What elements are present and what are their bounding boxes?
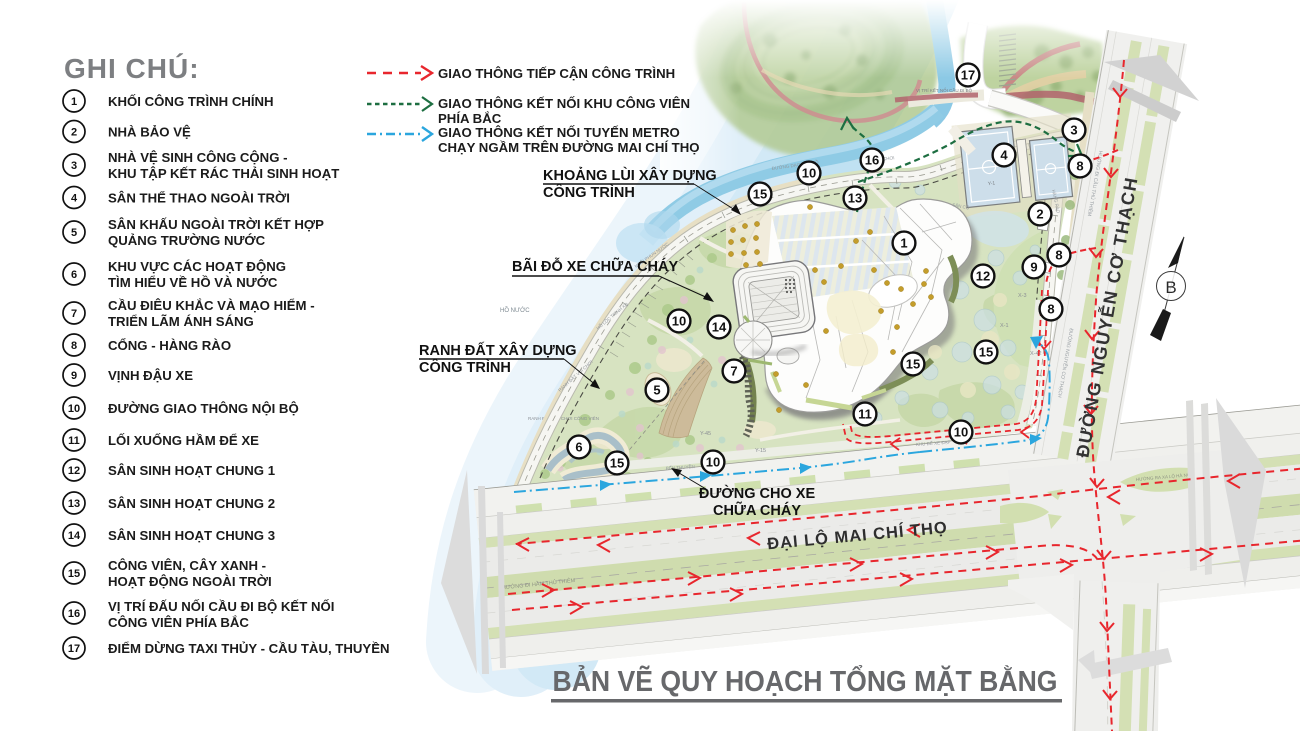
svg-text:8: 8 xyxy=(1055,248,1062,263)
svg-text:14: 14 xyxy=(712,320,727,335)
svg-text:5: 5 xyxy=(71,227,77,239)
svg-text:GIAO THÔNG KẾT NỐI TUYẾN METRO: GIAO THÔNG KẾT NỐI TUYẾN METRO xyxy=(438,125,680,140)
svg-text:RANH ĐẤT VUI CHƠI CÔNG VIÊN: RANH ĐẤT VUI CHƠI CÔNG VIÊN xyxy=(528,414,599,421)
svg-text:LỐI XUỐNG HẦM ĐỂ XE: LỐI XUỐNG HẦM ĐỂ XE xyxy=(108,433,259,448)
svg-text:CHỮA CHÁY: CHỮA CHÁY xyxy=(713,501,801,519)
svg-text:11: 11 xyxy=(68,435,80,447)
svg-text:NHÀ VỆ SINH CÔNG CỘNG -: NHÀ VỆ SINH CÔNG CỘNG - xyxy=(108,150,288,165)
svg-text:2: 2 xyxy=(1036,207,1043,222)
svg-text:6: 6 xyxy=(575,440,582,455)
svg-text:GHI CHÚ:: GHI CHÚ: xyxy=(64,53,200,84)
svg-text:ĐƯỜNG CHO XE: ĐƯỜNG CHO XE xyxy=(699,484,816,502)
svg-text:GIAO THÔNG KẾT NỐI KHU CÔNG VI: GIAO THÔNG KẾT NỐI KHU CÔNG VIÊN xyxy=(438,96,690,111)
svg-text:VỊ TRÍ KẾT NỐI CẦU ĐI BỘ: VỊ TRÍ KẾT NỐI CẦU ĐI BỘ xyxy=(916,87,973,93)
svg-text:13: 13 xyxy=(68,498,80,510)
svg-text:4: 4 xyxy=(71,193,78,205)
svg-text:CÔNG TRÌNH: CÔNG TRÌNH xyxy=(543,183,635,201)
svg-text:B: B xyxy=(1165,278,1176,297)
svg-text:PHÍA BẮC: PHÍA BẮC xyxy=(438,111,502,126)
svg-text:15: 15 xyxy=(610,456,624,471)
svg-text:CÔNG VIÊN PHÍA BẮC: CÔNG VIÊN PHÍA BẮC xyxy=(108,615,249,630)
svg-text:CẦU ĐIÊU KHẮC VÀ MẠO HIỂM -: CẦU ĐIÊU KHẮC VÀ MẠO HIỂM - xyxy=(108,298,315,313)
svg-text:10: 10 xyxy=(954,425,968,440)
svg-text:KHOẢNG LÙI XÂY DỰNG: KHOẢNG LÙI XÂY DỰNG xyxy=(543,166,717,184)
svg-text:15: 15 xyxy=(753,187,767,202)
svg-text:HOẠT ĐỘNG NGOÀI TRỜI: HOẠT ĐỘNG NGOÀI TRỜI xyxy=(108,574,272,589)
svg-text:KHU TẬP KẾT RÁC THẢI SINH HOẠT: KHU TẬP KẾT RÁC THẢI SINH HOẠT xyxy=(108,166,339,181)
svg-text:X-3: X-3 xyxy=(1018,293,1027,299)
svg-text:3: 3 xyxy=(71,160,77,172)
svg-text:9: 9 xyxy=(1030,260,1037,275)
svg-text:8: 8 xyxy=(1076,159,1083,174)
svg-text:Y-15: Y-15 xyxy=(755,448,766,454)
svg-text:CHẠY NGẦM TRÊN ĐƯỜNG MAI CHÍ T: CHẠY NGẦM TRÊN ĐƯỜNG MAI CHÍ THỌ xyxy=(438,140,700,155)
svg-text:HỒ NƯỚC: HỒ NƯỚC xyxy=(500,307,530,314)
svg-text:17: 17 xyxy=(961,68,975,83)
svg-text:10: 10 xyxy=(672,314,686,329)
svg-text:SÂN SINH HOẠT CHUNG 1: SÂN SINH HOẠT CHUNG 1 xyxy=(108,463,275,478)
svg-text:2: 2 xyxy=(71,127,77,139)
svg-text:CỔNG - HÀNG RÀO: CỔNG - HÀNG RÀO xyxy=(108,338,231,353)
svg-text:16: 16 xyxy=(865,153,879,168)
svg-text:15: 15 xyxy=(906,357,920,372)
svg-text:CÔNG VIÊN, CÂY XANH -: CÔNG VIÊN, CÂY XANH - xyxy=(108,558,266,573)
svg-text:RANH ĐẤT XÂY DỰNG: RANH ĐẤT XÂY DỰNG xyxy=(419,341,577,359)
svg-text:12: 12 xyxy=(976,269,990,284)
svg-text:ĐIỂM DỪNG TAXI THỦY - CẦU TÀU,: ĐIỂM DỪNG TAXI THỦY - CẦU TÀU, THUYỀN xyxy=(108,641,390,656)
svg-text:Y-1: Y-1 xyxy=(988,180,996,187)
svg-text:13: 13 xyxy=(848,191,862,206)
svg-text:1: 1 xyxy=(900,236,907,251)
svg-text:10: 10 xyxy=(68,403,80,415)
svg-text:TÌM HIỂU VỀ HỒ VÀ NƯỚC: TÌM HIỂU VỀ HỒ VÀ NƯỚC xyxy=(108,275,278,290)
svg-text:KHỐI CÔNG TRÌNH CHÍNH: KHỐI CÔNG TRÌNH CHÍNH xyxy=(108,94,274,109)
svg-text:VỊNH ĐẬU XE: VỊNH ĐẬU XE xyxy=(108,368,193,383)
svg-text:7: 7 xyxy=(730,364,737,379)
svg-text:SÂN THỂ THAO NGOÀI TRỜI: SÂN THỂ THAO NGOÀI TRỜI xyxy=(108,191,290,206)
svg-text:VỊ TRÍ ĐẤU NỐI CẦU ĐI BỘ KẾT N: VỊ TRÍ ĐẤU NỐI CẦU ĐI BỘ KẾT NỐI xyxy=(108,599,334,614)
svg-text:SÂN SINH HOẠT CHUNG 3: SÂN SINH HOẠT CHUNG 3 xyxy=(108,528,275,543)
svg-text:10: 10 xyxy=(802,166,816,181)
svg-text:9: 9 xyxy=(71,370,77,382)
svg-text:1: 1 xyxy=(71,96,77,108)
svg-text:KHU VỰC CÁC HOẠT ĐỘNG: KHU VỰC CÁC HOẠT ĐỘNG xyxy=(108,259,286,274)
svg-text:14: 14 xyxy=(68,530,81,542)
svg-text:CÔNG TRÌNH: CÔNG TRÌNH xyxy=(419,358,511,376)
svg-text:GIAO THÔNG TIẾP CẬN CÔNG TRÌNH: GIAO THÔNG TIẾP CẬN CÔNG TRÌNH xyxy=(438,66,675,81)
svg-text:X-1: X-1 xyxy=(1000,323,1009,329)
svg-text:12: 12 xyxy=(68,465,80,477)
svg-text:BÃI ĐỖ XE CHỮA CHÁY: BÃI ĐỖ XE CHỮA CHÁY xyxy=(512,257,678,275)
svg-text:7: 7 xyxy=(71,308,77,320)
svg-text:BẢN VẼ QUY HOẠCH TỔNG MẶT BẰNG: BẢN VẼ QUY HOẠCH TỔNG MẶT BẰNG xyxy=(553,664,1058,698)
svg-text:4: 4 xyxy=(1000,148,1008,163)
svg-text:8: 8 xyxy=(71,340,77,352)
svg-text:TRIỂN LÃM ÁNH SÁNG: TRIỂN LÃM ÁNH SÁNG xyxy=(108,314,254,329)
svg-text:15: 15 xyxy=(68,568,80,580)
svg-text:Y-45: Y-45 xyxy=(700,431,711,437)
svg-text:8: 8 xyxy=(1047,302,1054,317)
svg-text:NHÀ BẢO VỆ: NHÀ BẢO VỆ xyxy=(108,125,191,140)
svg-text:ĐƯỜNG GIAO THÔNG NỘI BỘ: ĐƯỜNG GIAO THÔNG NỘI BỘ xyxy=(108,401,299,416)
svg-text:X-42: X-42 xyxy=(1030,351,1042,357)
svg-text:QUẢNG TRƯỜNG NƯỚC: QUẢNG TRƯỜNG NƯỚC xyxy=(108,233,266,248)
svg-text:SÂN SINH HOẠT CHUNG 2: SÂN SINH HOẠT CHUNG 2 xyxy=(108,496,275,511)
svg-text:5: 5 xyxy=(653,383,660,398)
svg-text:3: 3 xyxy=(1070,123,1077,138)
svg-text:17: 17 xyxy=(68,643,80,655)
svg-text:10: 10 xyxy=(706,455,720,470)
svg-text:15: 15 xyxy=(979,345,993,360)
svg-text:16: 16 xyxy=(68,608,80,620)
svg-text:SÂN KHẤU NGOÀI TRỜI KẾT HỢP: SÂN KHẤU NGOÀI TRỜI KẾT HỢP xyxy=(108,217,324,232)
svg-text:11: 11 xyxy=(858,407,872,422)
svg-text:6: 6 xyxy=(71,269,77,281)
